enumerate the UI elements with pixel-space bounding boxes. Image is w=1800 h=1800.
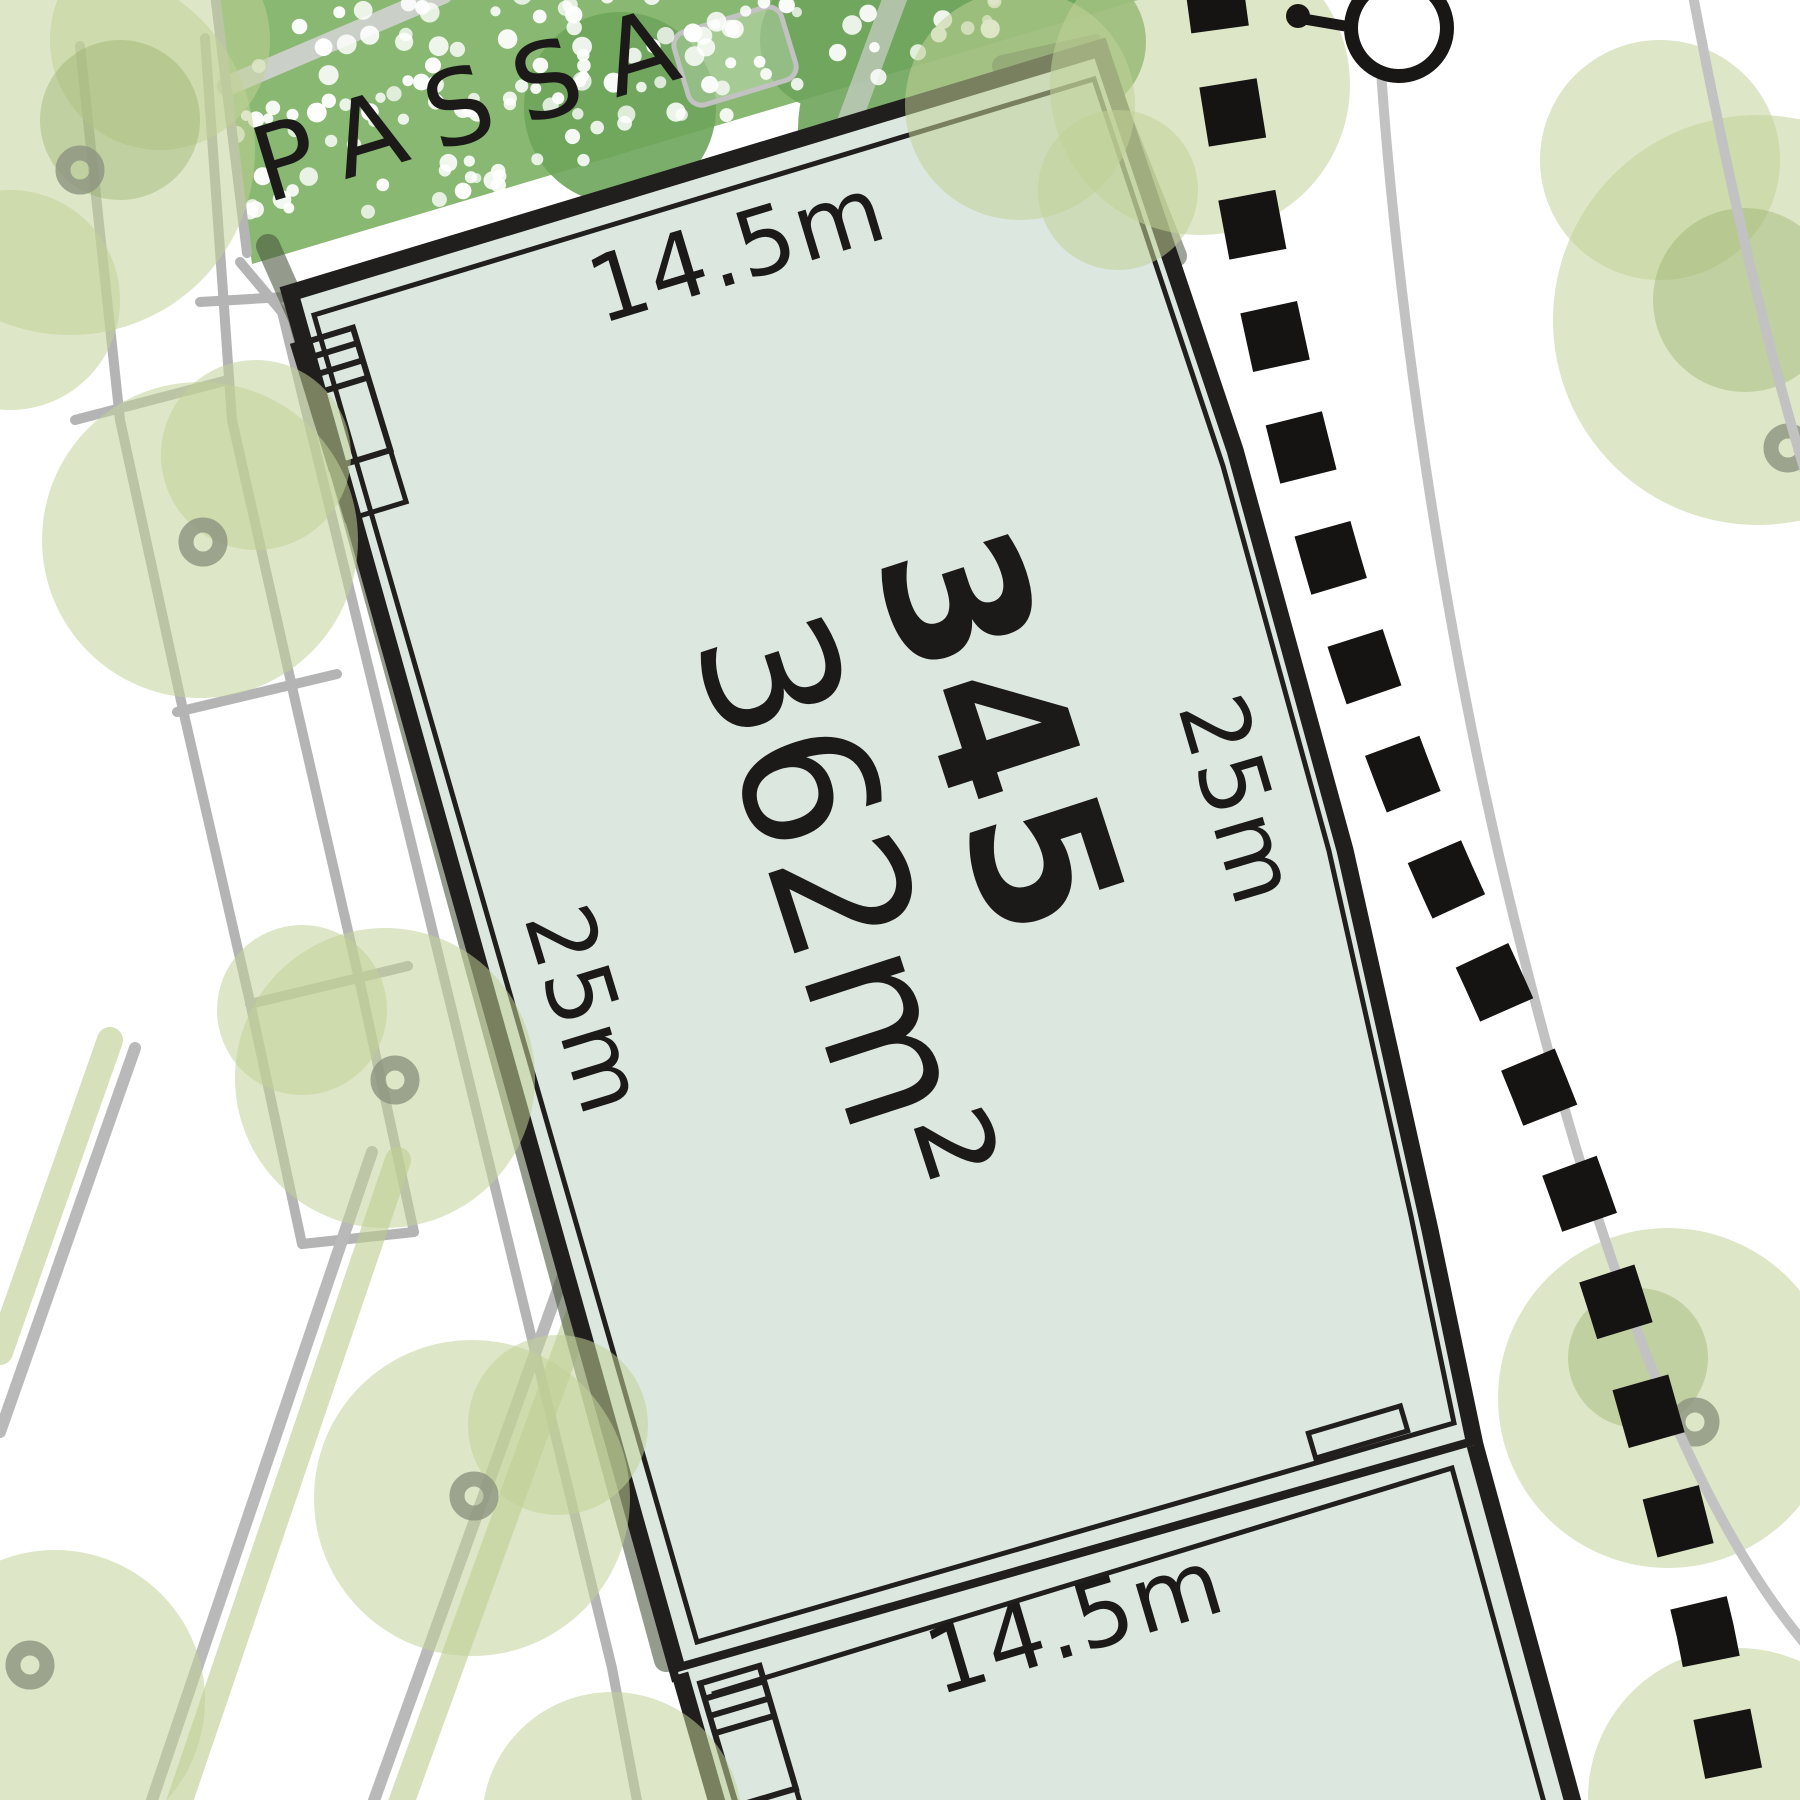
- stipple-dot: [829, 44, 846, 61]
- stipple-dot: [722, 20, 740, 38]
- stipple-dot: [577, 154, 589, 166]
- stipple-dot: [720, 108, 734, 122]
- stipple-dot: [491, 164, 506, 179]
- stipple-dot: [399, 28, 413, 42]
- estate-map-viewport: PASSA 345 362m² 14.5m 25m 25m 14.5m: [0, 0, 1800, 1800]
- stipple-dot: [859, 5, 877, 23]
- stipple-dot: [292, 19, 308, 35]
- stipple-dot: [531, 153, 543, 165]
- stipple-dot: [710, 19, 720, 29]
- stipple-dot: [740, 6, 751, 17]
- stipple-dot: [725, 57, 736, 68]
- stipple-dot: [465, 171, 477, 183]
- stipple-dot: [360, 26, 379, 45]
- stipple-dot: [760, 68, 772, 80]
- stipple-dot: [754, 56, 766, 68]
- stipple-dot: [791, 78, 804, 91]
- stipple-dot: [361, 205, 375, 219]
- peg-dot-icon: [1286, 4, 1310, 28]
- stipple-dot: [842, 15, 862, 35]
- footpath-connector: [200, 297, 284, 302]
- stipple-dot: [432, 192, 447, 207]
- stipple-dot: [490, 6, 500, 16]
- stipple-dot: [333, 6, 345, 18]
- stipple-dot: [354, 1, 373, 20]
- peg-circle-icon: [1351, 0, 1447, 76]
- stipple-dot: [870, 69, 886, 85]
- stipple-dot: [869, 42, 880, 53]
- stipple-dot: [315, 38, 333, 56]
- stipple-dot: [455, 183, 472, 200]
- estate-map-canvas: PASSA 345 362m² 14.5m 25m 25m 14.5m: [0, 0, 1800, 1800]
- stipple-dot: [337, 34, 357, 54]
- stipple-dot: [420, 3, 440, 23]
